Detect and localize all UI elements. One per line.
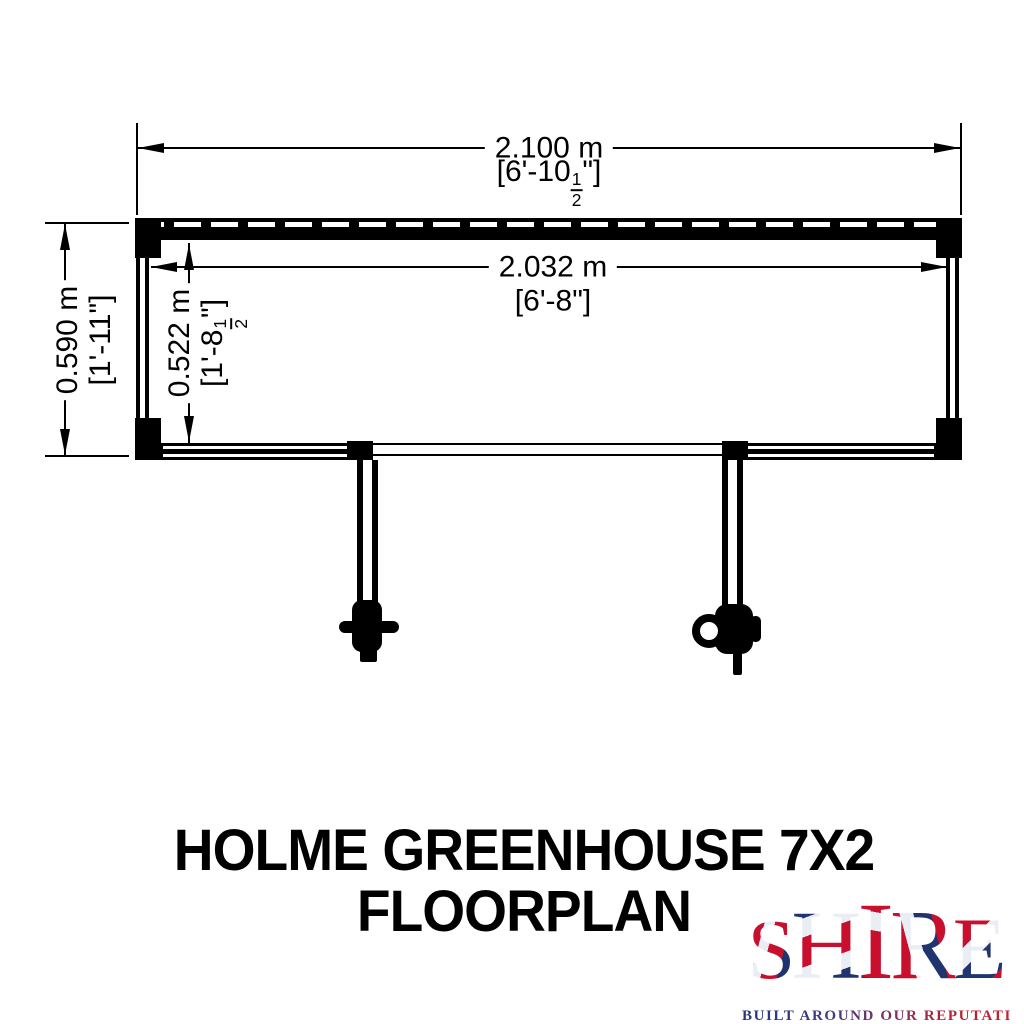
dim-left-inner-metric: 0.522 m: [163, 283, 196, 403]
floorplan-page: 2.100 m [6'-1012"] 2.032 m [6'-8"] 0.590…: [0, 0, 1024, 1024]
dim-top-inner-metric: 2.032 m: [489, 251, 617, 283]
dim-top-outer-imperial: [6'-1012"]: [487, 156, 612, 210]
fraction-numerator: 1: [212, 318, 232, 330]
arrowhead-icon: [184, 244, 194, 270]
door-leaf-left: [357, 460, 378, 608]
imperial-suffix: "]: [196, 299, 229, 318]
arrowhead-icon: [184, 416, 194, 442]
dim-left-outer-imperial: [1'-11"]: [84, 280, 117, 400]
corner-block-top-right: [936, 218, 962, 258]
door-jamb-right: [722, 441, 748, 460]
arrowhead-icon: [138, 143, 164, 153]
extension-line-right: [960, 123, 962, 215]
door-left-foot: [360, 649, 377, 662]
logo-letter-e: E: [953, 899, 1007, 1000]
door-jamb-left: [347, 441, 373, 460]
fraction: 12: [212, 318, 251, 330]
wall-bottom-right-corner: [934, 443, 962, 460]
extension-line-bottom: [45, 455, 129, 457]
fraction: 12: [571, 171, 583, 210]
wall-top-dashed-line: [137, 222, 960, 227]
dim-left-outer-metric: 0.590 m: [51, 280, 84, 400]
arrowhead-icon: [921, 262, 947, 272]
imperial-suffix: "]: [582, 155, 601, 188]
wall-bottom-right-segment: [748, 443, 962, 460]
wall-top: [135, 218, 962, 240]
shire-logo: S H I R E BUILT AROUND OUR REPUTATION: [742, 878, 1012, 1024]
arrowhead-icon: [151, 262, 177, 272]
title-line1: HOLME GREENHOUSE 7X2: [174, 820, 875, 881]
logo-letter-h: H: [791, 890, 861, 1001]
dim-left-outer-label: 0.590 m [1'-11"]: [51, 280, 117, 400]
dim-left-inner-imperial: [1'-812"]: [196, 283, 251, 403]
corner-block-top-left: [135, 218, 161, 258]
arrowhead-icon: [60, 429, 70, 455]
logo-letter-s: S: [747, 899, 795, 999]
shire-logo-letters: S H I R E: [742, 878, 1012, 1005]
wall-bottom-left-segment: [135, 443, 347, 460]
wall-bottom-left-corner: [135, 443, 163, 460]
logo-tagline: BUILT AROUND OUR REPUTATION: [742, 1008, 1012, 1024]
door-left-handle-bar: [339, 621, 399, 633]
dim-left-inner-label: 0.522 m [1'-812"]: [163, 283, 251, 403]
arrowhead-icon: [60, 224, 70, 250]
arrowhead-icon: [934, 143, 960, 153]
dim-top-inner-imperial: [6'-8"]: [505, 285, 601, 317]
extension-line-left: [136, 123, 138, 215]
door-right-key-tail: [733, 651, 742, 675]
door-leaf-right: [722, 460, 743, 610]
imperial-prefix: [6'-10: [497, 155, 571, 188]
door-right-knob: [750, 616, 761, 642]
door-opening-top-track: [373, 443, 722, 445]
extension-line-top: [45, 222, 129, 224]
door-opening-bottom-track: [373, 454, 722, 456]
logo-letter-r: R: [890, 887, 957, 1002]
wall-right-glazing: [946, 258, 962, 418]
fraction-numerator: 1: [571, 171, 583, 191]
fraction-denominator: 2: [572, 191, 582, 209]
wall-left-glazing: [136, 258, 152, 418]
imperial-prefix: [1'-8: [196, 330, 229, 387]
door-right-ring-handle-icon: [692, 614, 726, 648]
logo-letter-i: I: [857, 878, 894, 1005]
fraction-denominator: 2: [232, 319, 250, 329]
